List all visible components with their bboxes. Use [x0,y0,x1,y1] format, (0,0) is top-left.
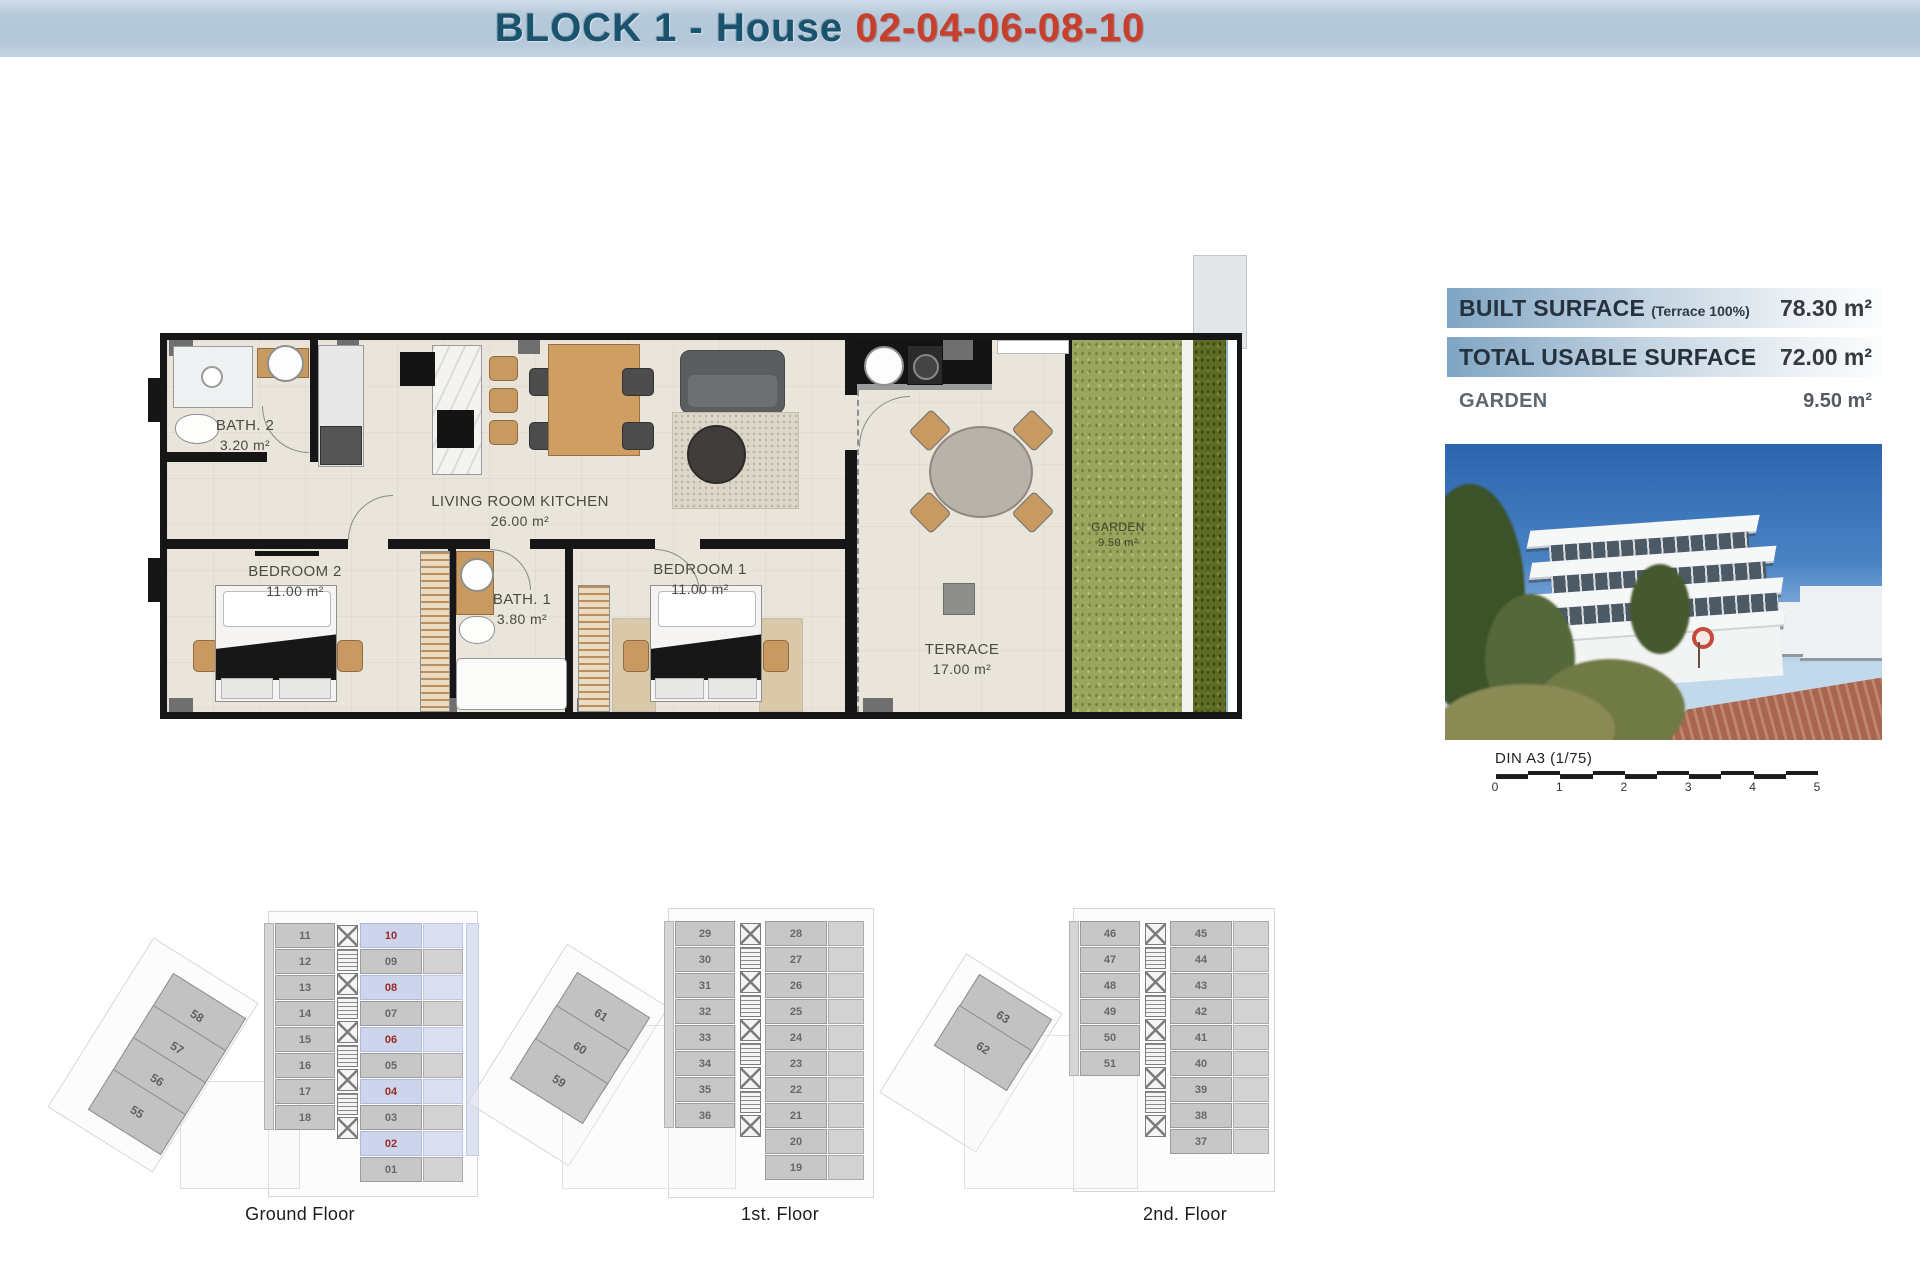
unit-number: 36 [675,1103,735,1128]
usable-surface-row: TOTAL USABLE SURFACE 72.00 m² [1447,337,1882,377]
unit-number: 40 [1170,1051,1232,1076]
unit-number: 37 [1170,1129,1232,1154]
unit-extension [1233,947,1269,972]
unit-number: 47 [1080,947,1140,972]
bath2-wall [310,340,318,462]
room-label-bath1: BATH. 13.80 m² [472,590,572,628]
unit-extension [828,1025,864,1050]
stairs-icon [1145,1091,1166,1113]
elevator-icon [1145,971,1166,993]
scale-label: DIN A3 (1/75) [1495,750,1592,767]
first-floor-label: 1st. Floor [700,1204,860,1225]
unit-number: 28 [765,921,827,946]
unit-number: 30 [675,947,735,972]
unit-number: 33 [675,1025,735,1050]
scale-segment [1560,775,1592,779]
elevator-icon [337,1117,358,1139]
unit-number: 05 [360,1053,422,1078]
unit-extension [828,947,864,972]
title-banner: BLOCK 1 - House 02-04-06-08-10 [0,0,1920,57]
balcony-strip [1069,921,1079,1076]
garden-surface-value: 9.50 m² [1803,390,1872,413]
unit-number: 24 [765,1025,827,1050]
scale-bar [1496,771,1818,779]
unit-number: 44 [1170,947,1232,972]
unit-number: 27 [765,947,827,972]
unit-extension [423,1079,463,1104]
kitchen-stool [489,388,518,413]
unit-number: 10 [360,923,422,948]
unit-number: 09 [360,949,422,974]
unit-extension [828,1103,864,1128]
unit-number: 23 [765,1051,827,1076]
photo-round-sign [1692,627,1714,649]
kitchen-stool [489,356,518,381]
stairs-icon [337,1045,358,1067]
unit-number: 34 [675,1051,735,1076]
unit-number: 19 [765,1155,827,1180]
photo-sign-post [1698,642,1700,668]
unit-number: 08 [360,975,422,1000]
unit-number: 13 [275,975,335,1000]
elevator-icon [740,971,761,993]
wall-stub [148,378,160,422]
stairs-icon [740,995,761,1017]
unit-extension [1233,1129,1269,1154]
miniplan-ground-floor: 5857565511121314151617181009080706050403… [85,903,485,1203]
kitchen-sink [400,352,435,386]
bath2-sink [267,345,304,382]
scale-tick: 0 [1492,780,1499,794]
unit-extension [423,949,463,974]
unit-number: 50 [1080,1025,1140,1050]
title-house-numbers: 02-04-06-08-10 [855,6,1145,50]
unit-number: 20 [765,1129,827,1154]
building-photo [1445,444,1882,740]
pillar [169,698,193,712]
kitchen-hob-island [437,410,474,448]
scale-segment [1786,771,1818,775]
scale-tick: 3 [1685,780,1692,794]
room-label-garden: GARDEN9.50 m² [1070,520,1166,550]
dining-chair [622,368,654,396]
stairs-icon [337,1093,358,1115]
room-label-bedroom2: BEDROOM 211.00 m² [225,562,365,600]
unit-number: 03 [360,1105,422,1130]
unit-number: 48 [1080,973,1140,998]
unit-extension [828,1155,864,1180]
stairs-icon [740,1091,761,1113]
unit-extension [423,1001,463,1026]
scale-tick: 2 [1620,780,1627,794]
miniplan-second-floor: 6362464748495051454443424140393837 [960,903,1275,1203]
unit-number: 26 [765,973,827,998]
elevator-icon [1145,1019,1166,1041]
terrace-table [929,426,1033,518]
terrace-planter [943,583,975,615]
room-label-bath2: BATH. 23.20 m² [185,416,305,454]
scale-segment [1625,775,1657,779]
elevator-icon [337,1021,358,1043]
unit-number: 04 [360,1079,422,1104]
pillar [863,698,893,712]
bedroom-wall [700,539,857,549]
garden-path [1182,340,1193,712]
unit-extension [423,975,463,1000]
scale-segment [1496,775,1528,779]
unit-number: 38 [1170,1103,1232,1128]
unit-number: 42 [1170,999,1232,1024]
bed-bedroom1 [650,585,762,702]
dining-chair [622,422,654,450]
unit-extension [1233,1025,1269,1050]
garden-hedge [1193,340,1226,712]
room-label-bedroom1: BEDROOM 111.00 m² [630,560,770,598]
unit-number: 51 [1080,1051,1140,1076]
stairs-icon [1145,1043,1166,1065]
washer-drum [913,354,939,380]
unit-extension [1233,1077,1269,1102]
elevator-icon [740,1115,761,1137]
unit-number: 06 [360,1027,422,1052]
unit-number: 46 [1080,921,1140,946]
elevator-icon [1145,923,1166,945]
garden-surface-row: GARDEN 9.50 m² [1447,387,1882,415]
tv-bedroom2 [255,551,319,556]
unit-number: 35 [675,1077,735,1102]
unit-number: 12 [275,949,335,974]
sofa [680,350,785,414]
scale-segment [1657,771,1689,775]
unit-number: 22 [765,1077,827,1102]
stairs-icon [337,997,358,1019]
bedroom-wall [388,539,490,549]
scale-tick: 4 [1749,780,1756,794]
scale-ticks: 012345 [1495,780,1819,794]
stairs-icon [740,1043,761,1065]
bed-bedroom2 [215,585,337,702]
unit-number: 39 [1170,1077,1232,1102]
built-surface-value: 78.30 m² [1780,295,1872,322]
highlight-strip [466,923,479,1156]
unit-number: 15 [275,1027,335,1052]
photo-palm [1630,564,1690,654]
unit-number: 49 [1080,999,1140,1024]
title-block-text: BLOCK 1 - House [495,6,843,50]
apartment-floor-plan: BATH. 23.20 m² LIVING ROOM KITCHEN26.00 … [160,333,1242,719]
page: BLOCK 1 - House 02-04-06-08-10 BUILT SUR… [0,0,1920,1280]
miniplan-first-floor: 6160592930313233343536282726252423222120… [540,903,870,1203]
stairs-icon [740,947,761,969]
built-surface-label: BUILT SURFACE [1459,295,1645,321]
unit-number: 29 [675,921,735,946]
unit-number: 31 [675,973,735,998]
elevator-icon [337,925,358,947]
room-label-living: LIVING ROOM KITCHEN26.00 m² [410,492,630,530]
balcony-strip [664,921,674,1128]
nightstand [763,640,789,672]
unit-number: 43 [1170,973,1232,998]
unit-number: 07 [360,1001,422,1026]
unit-extension [828,1077,864,1102]
unit-number: 01 [360,1157,422,1182]
scale-tick: 1 [1556,780,1563,794]
unit-number: 41 [1170,1025,1232,1050]
unit-extension [423,1157,463,1182]
unit-number: 18 [275,1105,335,1130]
bedroom-wall [530,539,655,549]
unit-number: 32 [675,999,735,1024]
unit-extension [828,973,864,998]
unit-number: 45 [1170,921,1232,946]
unit-extension [828,1051,864,1076]
page-title: BLOCK 1 - House 02-04-06-08-10 [0,0,1640,57]
unit-number: 02 [360,1131,422,1156]
wardrobe-bedroom1 [578,585,610,712]
scale-segment [1721,771,1753,775]
unit-number: 14 [275,1001,335,1026]
kitchen-oven [320,426,362,465]
nightstand [623,640,649,672]
pillar [943,340,973,360]
usable-surface-label: TOTAL USABLE SURFACE [1459,344,1756,370]
elevator-icon [740,923,761,945]
bedroom-wall [167,539,348,549]
balcony-strip [264,923,274,1130]
unit-extension [423,1027,463,1052]
usable-surface-value: 72.00 m² [1780,344,1872,371]
garden-surface-label: GARDEN [1459,390,1547,412]
scale-segment [1689,775,1721,779]
room-label-terrace: TERRACE17.00 m² [897,640,1027,678]
terrace-window [997,340,1069,354]
kitchen-stool [489,420,518,445]
unit-number: 17 [275,1079,335,1104]
stairs-icon [1145,947,1166,969]
unit-extension [1233,973,1269,998]
elevator-icon [740,1019,761,1041]
coffee-table [687,425,746,484]
scale-segment [1528,771,1560,775]
unit-extension [423,1053,463,1078]
terrace-wall [845,340,857,395]
wardrobe-bedroom2 [420,551,450,712]
bath1-sink [460,558,494,592]
unit-extension [423,1131,463,1156]
unit-extension [1233,1103,1269,1128]
elevator-icon [1145,1067,1166,1089]
nightstand [337,640,363,672]
water-heater [864,346,904,386]
unit-extension [828,1129,864,1154]
unit-extension [828,999,864,1024]
unit-extension [423,1105,463,1130]
unit-extension [1233,921,1269,946]
unit-extension [1233,999,1269,1024]
built-surface-note: (Terrace 100%) [1651,303,1750,319]
unit-number: 25 [765,999,827,1024]
scale-segment [1754,775,1786,779]
bath1-bathtub [456,658,567,710]
scale-segment [1593,771,1625,775]
wall-stub [148,558,160,602]
photo-far-building [1800,586,1882,661]
unit-extension [828,921,864,946]
scale-tick: 5 [1814,780,1821,794]
unit-number: 21 [765,1103,827,1128]
unit-number: 11 [275,923,335,948]
stairs-icon [337,949,358,971]
garden-edge [1226,340,1237,712]
terrace-wall [845,450,857,712]
pillar [518,340,540,354]
shower-drain [201,366,223,388]
elevator-icon [337,1069,358,1091]
built-surface-row: BUILT SURFACE(Terrace 100%) 78.30 m² [1447,288,1882,328]
stairs-icon [1145,995,1166,1017]
unit-extension [1233,1051,1269,1076]
unit-extension [423,923,463,948]
unit-number: 16 [275,1053,335,1078]
second-floor-label: 2nd. Floor [1105,1204,1265,1225]
elevator-icon [740,1067,761,1089]
scale-bar-box: DIN A3 (1/75) 012345 [1495,750,1825,794]
elevator-icon [337,973,358,995]
ground-floor-label: Ground Floor [220,1204,380,1225]
elevator-icon [1145,1115,1166,1137]
